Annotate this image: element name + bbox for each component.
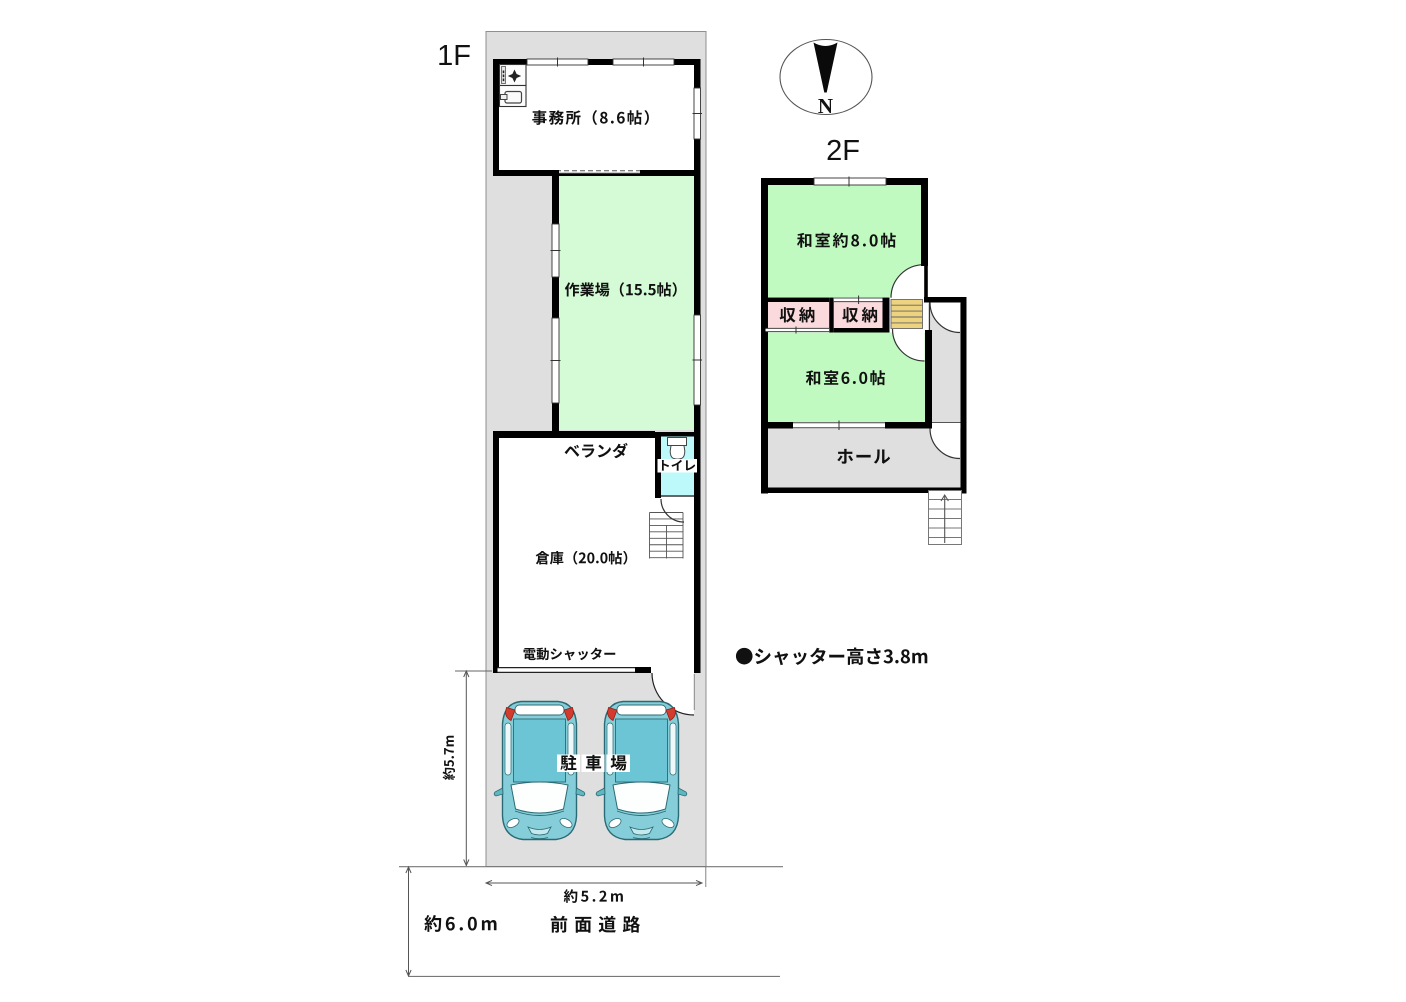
svg-text:1F: 1F xyxy=(437,40,471,72)
svg-text:2F: 2F xyxy=(826,135,860,167)
svg-text:N: N xyxy=(818,94,833,118)
